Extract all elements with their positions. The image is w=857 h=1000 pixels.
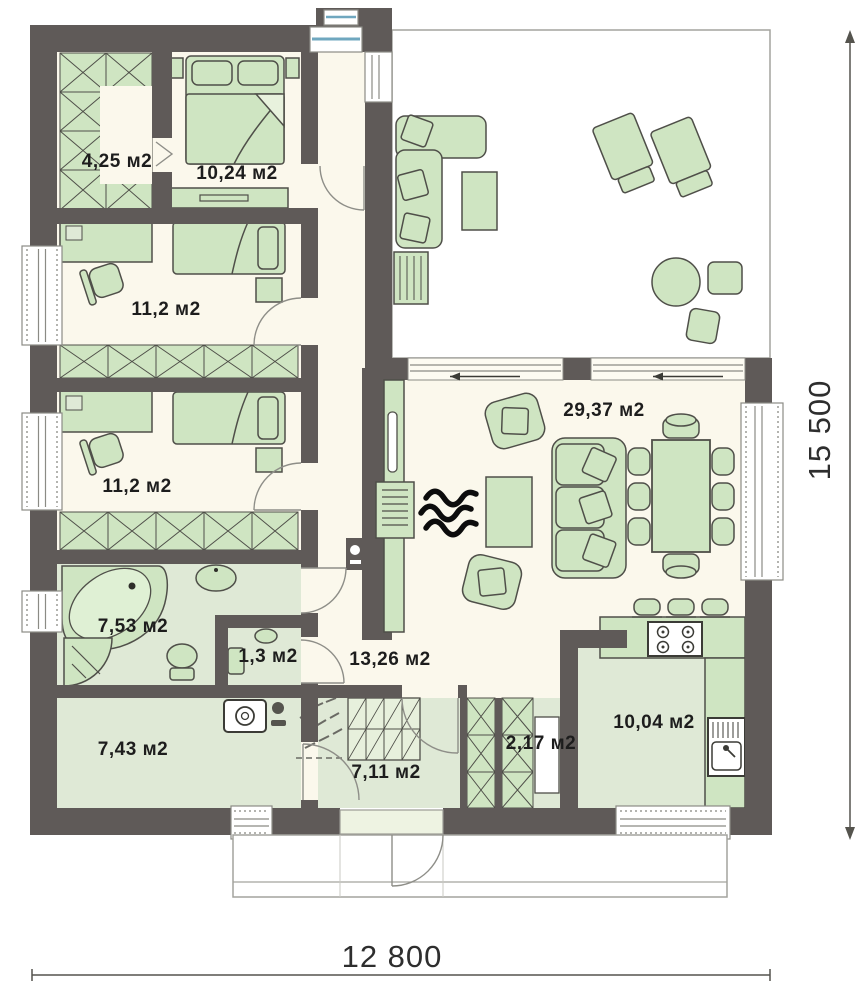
dimension-height-label: 15 500 (802, 380, 837, 481)
dimension-bottom: 12 800 (32, 939, 770, 981)
coffee-table-icon (486, 477, 532, 547)
room-area-label-kitchen: 10,04 м2 (613, 712, 694, 734)
double-bed-icon (186, 56, 284, 164)
sliding-door (591, 358, 745, 381)
room-area-label-entry: 7,11 м2 (351, 762, 420, 784)
window (616, 806, 730, 839)
single-bed-icon (173, 222, 285, 274)
kitchen-sink-icon (708, 718, 745, 776)
floor-plan-drawing: 12 800 15 500 (0, 0, 857, 1000)
room-area-label-bedroom-main: 10,24 м2 (196, 163, 277, 185)
window (741, 403, 783, 580)
room-area-label-utility: 7,43 м2 (98, 739, 168, 761)
sink-icon (196, 565, 236, 591)
window (365, 52, 392, 102)
entrance-door (340, 810, 443, 834)
bar-stool-icon (632, 599, 730, 617)
window (324, 10, 358, 25)
door-hardware-icon (350, 560, 361, 564)
window (22, 413, 62, 510)
room-area-label-wardrobe: 4,25 м2 (82, 151, 152, 173)
window (22, 591, 62, 632)
wardrobe-icon (60, 512, 298, 550)
wardrobe-icon (60, 345, 298, 378)
outdoor-side-table-icon (462, 172, 497, 230)
wardrobe-icon (60, 53, 152, 210)
planter-icon (394, 252, 428, 304)
shoe-cabinet-icon (348, 698, 420, 760)
toilet-icon (167, 644, 197, 680)
stove-icon (648, 622, 702, 656)
room-area-label-bedroom-2: 11,2 м2 (102, 476, 171, 498)
sliding-door (408, 358, 563, 381)
dimension-width-label: 12 800 (342, 939, 443, 974)
room-area-label-living-room: 29,37 м2 (563, 400, 644, 422)
single-bed-icon (173, 392, 285, 444)
door-hardware-icon (350, 545, 360, 555)
terrace (392, 30, 770, 358)
window (310, 27, 362, 52)
outdoor-round-table-icon (652, 258, 700, 306)
nightstand-icon (256, 278, 282, 302)
desk-icon (60, 218, 152, 262)
dimension-right: 15 500 (802, 30, 855, 840)
room-area-label-closet: 2,17 м2 (506, 733, 576, 755)
room-area-label-hallway: 13,26 м2 (349, 649, 430, 671)
sofa-icon (552, 438, 626, 578)
floor-plan: 12 800 15 500 4,25 м2 10,24 м2 11,2 м2 1… (0, 0, 857, 1000)
window (22, 246, 62, 345)
dining-table-icon (652, 440, 710, 552)
washing-machine-icon (224, 700, 266, 732)
room-area-label-bathroom: 7,53 м2 (98, 616, 168, 638)
desk-icon (60, 388, 152, 432)
window (231, 806, 272, 839)
dresser-icon (158, 188, 288, 208)
room-area-label-wc: 1,3 м2 (238, 646, 297, 668)
room-area-label-bedroom-1: 11,2 м2 (131, 299, 200, 321)
